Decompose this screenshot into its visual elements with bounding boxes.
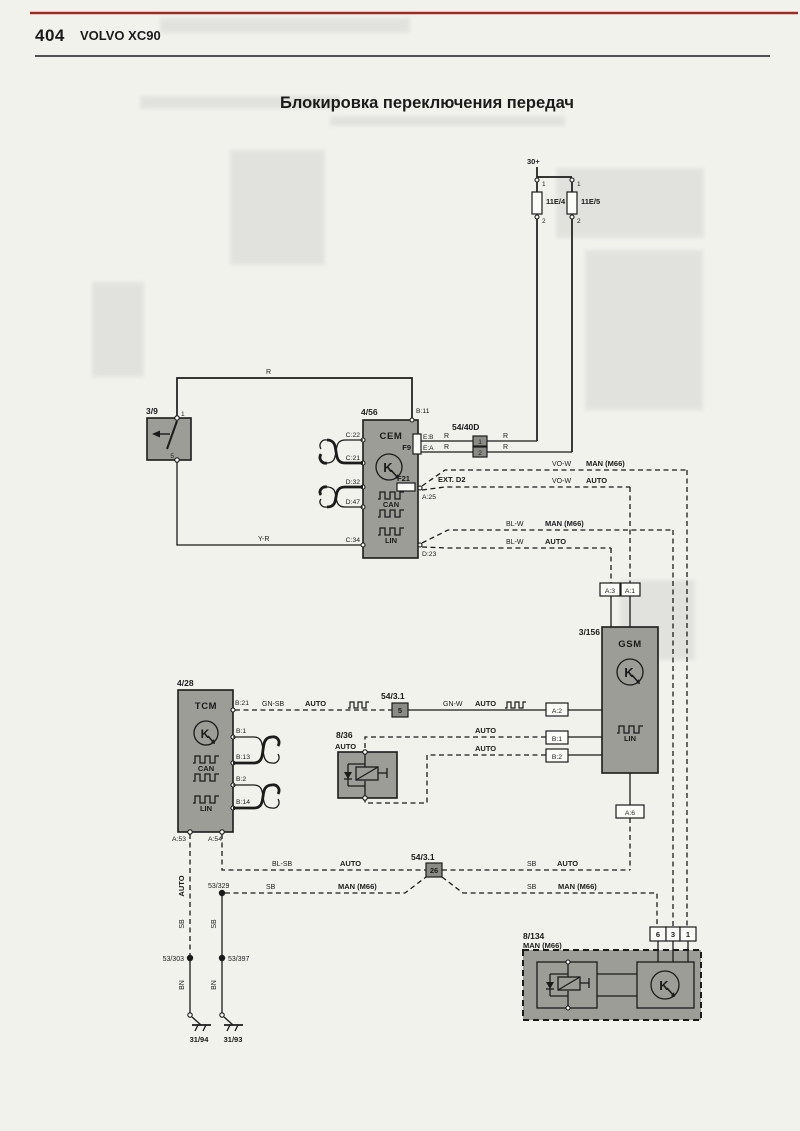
cem-pin-a25: A:25 (422, 494, 436, 501)
wire-r-eb-label: R (444, 433, 449, 440)
wire-b2-fn: AUTO (475, 744, 496, 753)
manual-page: 404 VOLVO XC90 Блокировка переключения п… (0, 0, 800, 1131)
gsm-pin-b2: B:2 (552, 754, 562, 761)
wire-blw-man-fn: MAN (M66) (545, 519, 584, 528)
gsm-id: 3/156 (579, 627, 601, 637)
switch-3-9-id: 3/9 (146, 406, 158, 416)
tcm-can-label: CAN (198, 764, 214, 773)
lin-wave-left (348, 702, 369, 708)
wire-blsb-auto (222, 834, 426, 870)
shifter-pin1-label: 1 (686, 930, 690, 939)
fuse-11e5 (567, 192, 577, 214)
wire-r-top-label: R (266, 369, 271, 376)
tcm-pin-b1: B:1 (236, 728, 246, 735)
diagram-title: Блокировка переключения передач (280, 94, 574, 112)
cem-f21-label: F21 (397, 474, 410, 483)
wire-r-ea-label: R (444, 444, 449, 451)
tcm-pin-a54: A:54 (208, 836, 222, 843)
cem-id: 4/56 (361, 407, 378, 417)
connector-54-31-top-id: 54/3.1 (381, 691, 405, 701)
fuse2-pin1: 1 (577, 181, 581, 188)
shifter-8-134-variant: MAN (M66) (523, 941, 562, 950)
cem-lin-label: LIN (385, 536, 397, 545)
wire-bn-left: BN (179, 980, 186, 990)
wire-gnw-color: GN-W (443, 701, 463, 708)
shifter-8-134-id: 8/134 (523, 931, 545, 941)
wire-gnsb-color: GN-SB (262, 701, 285, 708)
wire-r-right2-label: R (503, 444, 508, 451)
wire-sb-man-right-fn: MAN (M66) (558, 882, 597, 891)
fuse-11e4 (532, 192, 542, 214)
gsm-pin-a2: A:2 (552, 708, 562, 715)
tcm-pin-b21: B:21 (235, 700, 249, 707)
wire-a53-color: SB (179, 919, 186, 929)
tcm-lin-label: LIN (200, 804, 212, 813)
tcm-k-letter: K (201, 727, 210, 741)
fuse1-pin2: 2 (542, 218, 546, 225)
cem-module: 4/56 CEM B:11 K F9 E:B E:A CAN LIN C:22 … (320, 407, 437, 558)
wire-yr-label: Y-R (258, 536, 269, 543)
gsm-pin-b1: B:1 (552, 736, 562, 743)
cem-fuse-f21 (397, 483, 415, 491)
wire-vow-man-fn: MAN (M66) (586, 459, 625, 468)
gsm-lin-label: LIN (624, 734, 636, 743)
gsm-pin-a6: A:6 (625, 810, 635, 817)
wire-blw-auto-fn: AUTO (545, 537, 566, 546)
cem-pin-d47: D:47 (346, 499, 361, 506)
page-number: 404 (35, 26, 65, 45)
tcm-pin-b2: B:2 (236, 776, 246, 783)
fuse2-pin2: 2 (577, 218, 581, 225)
wire-sb-auto-color: SB (527, 861, 537, 868)
switch-pin5: 5 (170, 453, 174, 460)
cem-pin-eb: E:B (423, 434, 433, 441)
cem-pin-d32: D:32 (346, 479, 361, 486)
shifter-pin3-label: 3 (671, 930, 675, 939)
ground-31-93-label: 31/93 (224, 1035, 243, 1044)
wire-sb-man-left (225, 877, 426, 893)
cem-fuse-f9 (413, 434, 421, 454)
bus-30-label: 30+ (527, 157, 540, 166)
splice-53-303-label: 53/303 (163, 956, 185, 963)
solenoid-8-36-id: 8/36 (336, 730, 353, 740)
gsm-pin-a3: A:3 (605, 588, 615, 595)
splice-53-397-label: 53/397 (228, 956, 250, 963)
shifter-8-134: 8/134 MAN (M66) 6 3 1 K (523, 927, 701, 1020)
wire-sb-man-left-fn: MAN (M66) (338, 882, 377, 891)
ground-31-93-icon (220, 1013, 243, 1031)
connector-54-40d-id: 54/40D (452, 422, 479, 432)
connector-54-31-bottom-id: 54/3.1 (411, 852, 435, 862)
page-brand: VOLVO XC90 (80, 28, 161, 43)
gsm-name: GSM (618, 639, 641, 650)
ext-d2-label: EXT. D2 (438, 475, 466, 484)
fuse2-pin2-terminal (570, 215, 574, 219)
lin-line: GN-SB AUTO 54/3.1 5 GN-W AUTO (235, 691, 546, 717)
connector-54-31-top-pin: 5 (398, 706, 402, 715)
wire-b1-auto (365, 737, 546, 752)
fuse1-pin1: 1 (542, 181, 546, 188)
cem-pin-c22: C:22 (346, 432, 361, 439)
wire-bn-right: BN (211, 980, 218, 990)
solenoid-8-36: AUTO AUTO 8/36 AUTO (335, 726, 546, 803)
connector-54-31-bottom-pin: 26 (430, 866, 438, 875)
fuse1-pin1-terminal (535, 178, 539, 182)
tcm-pin-a53: A:53 (172, 836, 186, 843)
wire-a53-fn: AUTO (177, 875, 186, 896)
fuse2-pin1-terminal (570, 178, 574, 182)
ground-columns: AUTO SB 53/303 BN 31/94 SB 53/397 BN 31/… (163, 834, 250, 1044)
scan-bleed-artifacts (92, 18, 704, 660)
wire-blsb-color: BL-SB (272, 861, 293, 868)
switch-pin1: 1 (181, 411, 185, 418)
ground-routing: BL-SB AUTO SB AUTO 54/3.1 26 53/329 SB M… (208, 834, 657, 927)
ground-31-94-label: 31/94 (190, 1035, 210, 1044)
wire-vow-auto-color: VO-W (552, 478, 571, 485)
wire-sb-auto-fn: AUTO (557, 859, 578, 868)
wire-sb-man-left-color: SB (266, 884, 276, 891)
switch-3-9 (147, 418, 191, 460)
gsm-k-letter: K (624, 665, 634, 680)
wire-blsb-fn: AUTO (340, 859, 361, 868)
cem-f9-label: F9 (402, 443, 411, 452)
wire-blw-man-color: BL-W (506, 521, 524, 528)
tcm-id: 4/28 (177, 678, 194, 688)
cem-pin-ea: E:A (423, 445, 434, 452)
cem-name: CEM (380, 431, 403, 442)
shifter-k-letter: K (659, 978, 669, 993)
wire-vow-auto (422, 487, 630, 490)
tcm-pin-b13: B:13 (236, 754, 250, 761)
lin-wave-right (505, 702, 526, 708)
connector-54-40d: R R 54/40D 1 2 R R (421, 422, 572, 457)
wire-sb-man-right-color: SB (527, 884, 537, 891)
fuse-11e5-label: 11E/5 (581, 197, 600, 206)
wire-gnsb-fn: AUTO (305, 699, 326, 708)
fuse-11e4-label: 11E/4 (546, 197, 566, 206)
solenoid-8-36-variant: AUTO (335, 742, 356, 751)
cem-pin-d23: D:23 (422, 551, 437, 558)
shifter-pin6-label: 6 (656, 930, 660, 939)
wire-r-right1-label: R (503, 433, 508, 440)
cem-pin-c34: C:34 (346, 537, 361, 544)
connector-54-40d-pin2-label: 2 (478, 450, 482, 457)
gsm-pin-a1: A:1 (625, 588, 635, 595)
cem-k-letter: K (383, 460, 393, 475)
wire-vow-auto-fn: AUTO (586, 476, 607, 485)
cem-can-label: CAN (383, 500, 399, 509)
wire-gnw-fn: AUTO (475, 699, 496, 708)
ground-31-94-icon (188, 1013, 211, 1031)
fuse1-pin2-terminal (535, 215, 539, 219)
cem-pin-b11: B:11 (416, 408, 430, 415)
wire-blw-auto-color: BL-W (506, 539, 524, 546)
tcm-pin-b14: B:14 (236, 799, 250, 806)
wire-sb-man-right (442, 877, 657, 927)
wire-b1-fn: AUTO (475, 726, 496, 735)
wire-blw-auto (422, 547, 611, 548)
connector-54-40d-pin1-label: 1 (478, 439, 482, 446)
wire-vow-man-color: VO-W (552, 461, 571, 468)
cem-pin-c21: C:21 (346, 455, 361, 462)
tcm-name: TCM (195, 701, 217, 712)
splice-53-329-label: 53/329 (208, 883, 230, 890)
wire-sb-329-color: SB (211, 919, 218, 929)
